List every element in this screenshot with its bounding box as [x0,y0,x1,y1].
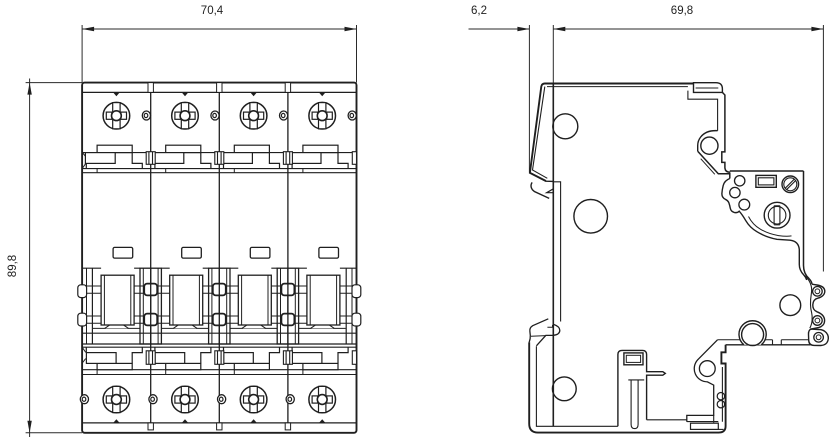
svg-text:69,8: 69,8 [671,5,693,17]
svg-text:89,8: 89,8 [7,255,19,277]
svg-text:6,2: 6,2 [471,5,487,17]
svg-text:70,4: 70,4 [201,5,224,17]
